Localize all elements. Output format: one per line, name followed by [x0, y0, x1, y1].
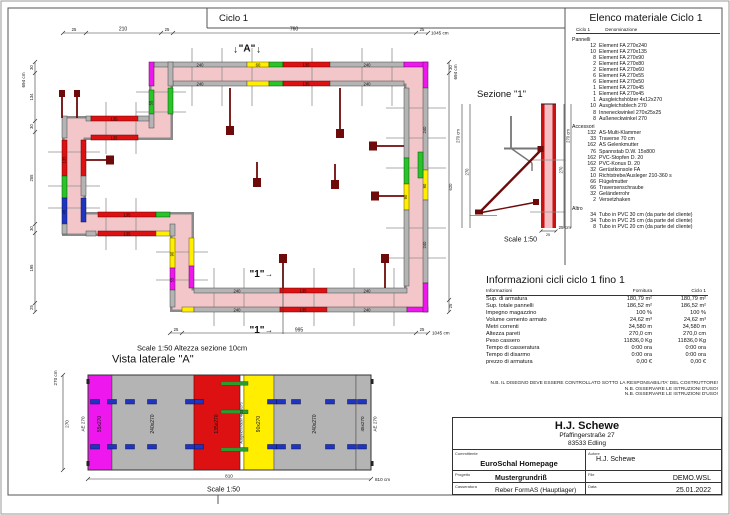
info-fornitura-value: 34,580 m [590, 324, 652, 331]
svg-text:694 cm: 694 cm [21, 72, 26, 87]
svg-text:255: 255 [29, 174, 34, 182]
info-label: Volume cemento armato [486, 317, 590, 324]
svg-text:25: 25 [174, 327, 179, 332]
svg-text:240x270: 240x270 [312, 414, 318, 433]
info-label: Tempo di disarmo [486, 352, 590, 359]
cell-autore: Autore H.J. Schewe [586, 450, 721, 470]
data-value: 25.01.2022 [586, 483, 721, 494]
info-ciclo-value: 186,52 m² [652, 303, 706, 310]
company-street: Pfaffingerstraße 27 [453, 432, 721, 440]
svg-text:25: 25 [420, 327, 425, 332]
info-ciclo-value: 100 % [652, 310, 706, 317]
svg-text:240: 240 [422, 126, 427, 134]
autore-value: H.J. Schewe [586, 450, 721, 463]
svg-text:694 cm: 694 cm [453, 64, 458, 79]
svg-text:270: 270 [559, 166, 564, 174]
section-title: Sezione "1" [477, 89, 526, 100]
info-ciclo-value: 0:00 ora [652, 345, 706, 352]
header-fornitura: Fornitura [590, 289, 652, 294]
svg-text:→: → [265, 326, 273, 335]
material-list: Elenco materiale Ciclo 1 Ciclo 1 Denomin… [572, 12, 720, 230]
svg-text:240: 240 [197, 81, 205, 86]
info-fornitura-value: 24,62 m³ [590, 317, 652, 324]
svg-text:1045 cm: 1045 cm [432, 331, 450, 336]
info-label: Sup. di armatura [486, 296, 590, 303]
cell-file: File DEMO.WSL [586, 471, 721, 482]
material-row: 8 Tubo in PVC 20 cm (da parte del client… [572, 224, 720, 230]
info-label: Altezza pareti [486, 331, 590, 338]
svg-text:135: 135 [300, 307, 308, 312]
svg-text:Ausgleichshölzer 4x12x270: Ausgleichshölzer 4x12x270 [240, 402, 244, 443]
plan-view: 240 240 60 135 135 240 240 240 90 240 90… [21, 27, 458, 353]
svg-text:135x270: 135x270 [214, 414, 220, 433]
material-qty: 8 [572, 116, 596, 122]
company-city: 83533 Edling [453, 440, 721, 448]
material-name: Außeneckwinkel 270 [599, 116, 647, 122]
material-rows-pannelli: 12 Element FA 270x240 10 Element FA 270x… [572, 43, 720, 122]
svg-text:"1": "1" [249, 269, 264, 280]
info-label: prezzo di armatura [486, 359, 590, 366]
svg-text:240: 240 [234, 288, 242, 293]
svg-text:90: 90 [422, 183, 427, 188]
svg-text:1045 cm: 1045 cm [431, 31, 449, 36]
plan-scale-note: Scale 1:50 Altezza sezione 10cm [137, 344, 247, 353]
info-fornitura-value: 11836,0 Kg [590, 338, 652, 345]
cell-casseratura: Casseratura Reber FormAS (Hauptlager) [453, 483, 586, 495]
info-row: Tempo di disarmo 0:00 ora 0:00 ora [486, 352, 708, 359]
title-block-company: H.J. Schewe Pfaffingerstraße 27 83533 Ed… [453, 418, 721, 450]
info-ciclo-value: 0,00 € [652, 359, 706, 366]
info-fornitura-value: 270,0 cm [590, 331, 652, 338]
info-row: Sup. totale pannelli 186,52 m² 186,52 m² [486, 303, 708, 310]
svg-text:240: 240 [197, 62, 205, 67]
info-fornitura-value: 0:00 ora [590, 345, 652, 352]
svg-text:240: 240 [364, 62, 372, 67]
svg-text:135: 135 [124, 231, 132, 236]
svg-text:30: 30 [29, 124, 34, 129]
svg-text:135: 135 [62, 156, 67, 164]
svg-text:↓: ↓ [233, 45, 238, 56]
svg-text:25: 25 [546, 233, 550, 237]
info-row: Metri correnti 34,580 m 34,580 m [486, 324, 708, 331]
side-view: Vista laterale "A" [53, 354, 390, 494]
svg-text:270: 270 [465, 168, 470, 176]
svg-text:270: 270 [65, 420, 70, 428]
info-row: Volume cemento armato 24,62 m³ 24,62 m³ [486, 317, 708, 324]
svg-text:"A": "A" [239, 44, 256, 55]
progetto-value: Mustergrundriß [453, 471, 585, 482]
cell-committente: Committente EuroSchal Homepage [453, 450, 586, 470]
svg-text:25: 25 [165, 27, 170, 32]
svg-text:270 cm: 270 cm [456, 129, 461, 143]
svg-text:240: 240 [364, 307, 372, 312]
nb-notes: N.B. IL DISEGNO DEVE ESSERE CONTROLLATO … [430, 381, 718, 398]
file-label: File [588, 472, 594, 477]
cycle-info-table: Informazioni cicli ciclo 1 fino 1 Inform… [486, 274, 708, 366]
svg-text:135: 135 [124, 212, 132, 217]
svg-text:210: 210 [119, 27, 128, 33]
svg-text:240x270: 240x270 [150, 414, 156, 433]
info-row: Sup. di armatura 180,79 m² 180,79 m² [486, 296, 708, 303]
info-row: Altezza pareti 270,0 cm 270,0 cm [486, 331, 708, 338]
svg-text:195: 195 [29, 264, 34, 272]
svg-text:995: 995 [295, 328, 304, 334]
section-scale: Scale 1:50 [504, 237, 537, 244]
title-block: H.J. Schewe Pfaffingerstraße 27 83533 Ed… [452, 417, 722, 495]
info-label: Impegno magazzino [486, 310, 590, 317]
svg-text:810: 810 [225, 474, 233, 479]
svg-text:30: 30 [448, 65, 453, 70]
plan-title: Ciclo 1 [219, 13, 248, 24]
svg-text:135: 135 [111, 135, 119, 140]
svg-text:240: 240 [234, 307, 242, 312]
cycle-info-header: Informazioni Fornitura Ciclo 1 [486, 289, 708, 296]
side-view-scale: Scale 1:50 [207, 487, 240, 494]
plan-traverses [48, 48, 446, 326]
svg-text:30: 30 [29, 226, 34, 231]
cycle-info-title: Informazioni cicli ciclo 1 fino 1 [486, 274, 708, 286]
svg-text:760: 760 [290, 27, 299, 33]
nb-note-line: N.B. OSSERVARE LE ISTRUZIONI D'USO! [430, 392, 718, 398]
svg-text:134: 134 [29, 93, 34, 101]
svg-text:90x270: 90x270 [256, 416, 262, 433]
info-label: Tempo di casseratura [486, 345, 590, 352]
material-name: Versetzhaken [599, 197, 630, 203]
plan-walls [74, 74, 416, 300]
company-name: H.J. Schewe [453, 420, 721, 432]
svg-text:AE 270: AE 270 [373, 416, 378, 432]
svg-text:135: 135 [303, 62, 311, 67]
plan-panels [62, 62, 428, 312]
svg-text:135: 135 [111, 116, 119, 121]
info-ciclo-value: 34,580 m [652, 324, 706, 331]
info-ciclo-value: 270,0 cm [652, 331, 706, 338]
svg-text:55x270: 55x270 [97, 416, 103, 433]
svg-text:240: 240 [422, 241, 427, 249]
info-ciclo-value: 180,79 m² [652, 296, 706, 303]
svg-text:90: 90 [170, 251, 175, 256]
svg-text:45: 45 [62, 209, 67, 214]
svg-text:60: 60 [256, 62, 261, 67]
svg-text:25: 25 [72, 27, 77, 32]
svg-text:↓: ↓ [256, 45, 261, 56]
material-rows-altro: 34 Tubo in PVC 30 cm (da parte del clien… [572, 212, 720, 230]
info-fornitura-value: 0,00 € [590, 359, 652, 366]
svg-text:45x270: 45x270 [360, 416, 365, 432]
info-row: prezzo di armatura 0,00 € 0,00 € [486, 359, 708, 366]
svg-text:AE 270: AE 270 [81, 416, 86, 432]
cell-data: Data 25.01.2022 [586, 483, 721, 495]
svg-text:55: 55 [149, 100, 154, 105]
svg-text:25: 25 [420, 27, 425, 32]
info-row: Tempo di casseratura 0:00 ora 0:00 ora [486, 345, 708, 352]
autore-label: Autore [588, 451, 600, 456]
info-fornitura-value: 186,52 m² [590, 303, 652, 310]
progetto-label: Progetto [455, 472, 470, 477]
drawing-sheet: Ciclo 1 [0, 0, 730, 515]
svg-text:25: 25 [448, 303, 453, 308]
svg-text:620: 620 [448, 183, 453, 191]
svg-text:810 cm: 810 cm [375, 477, 390, 482]
material-list-title: Elenco materiale Ciclo 1 [572, 12, 720, 24]
casseratura-label: Casseratura [455, 484, 477, 489]
material-list-columns: Ciclo 1 Denominazione [576, 27, 720, 34]
svg-text:240: 240 [364, 288, 372, 293]
info-label: Peso cassero [486, 338, 590, 345]
material-row: 2 Versetzhaken [572, 197, 720, 203]
svg-text:25: 25 [29, 305, 34, 310]
cell-progetto: Progetto Mustergrundriß [453, 471, 586, 482]
info-label: Metri correnti [486, 324, 590, 331]
svg-text:30: 30 [29, 65, 34, 70]
cycle-info-rows: Sup. di armatura 180,79 m² 180,79 m² Sup… [486, 296, 708, 366]
info-row: Impegno magazzino 100 % 100 % [486, 310, 708, 317]
info-ciclo-value: 11836,0 Kg [652, 338, 706, 345]
material-name: Tubo in PVC 20 cm (da parte del cliente) [599, 224, 693, 230]
info-label: Sup. totale pannelli [486, 303, 590, 310]
material-qty: 8 [572, 224, 596, 230]
info-fornitura-value: 100 % [590, 310, 652, 317]
svg-text:135: 135 [303, 81, 311, 86]
svg-text:240: 240 [364, 81, 372, 86]
material-row: 8 Außeneckwinkel 270 [572, 116, 720, 122]
material-qty: 2 [572, 197, 596, 203]
info-row: Peso cassero 11836,0 Kg 11836,0 Kg [486, 338, 708, 345]
column-denominazione: Denominazione [605, 27, 637, 32]
column-ciclo: Ciclo 1 [576, 27, 604, 32]
header-ciclo1: Ciclo 1 [652, 289, 706, 294]
info-fornitura-value: 0:00 ora [590, 352, 652, 359]
section-view: Sezione "1" 270 cm 270 270 270 cm 25 25 … [456, 89, 572, 244]
svg-text:135: 135 [300, 288, 308, 293]
info-ciclo-value: 24,62 m³ [652, 317, 706, 324]
info-ciclo-value: 0:00 ora [652, 352, 706, 359]
info-fornitura-value: 180,79 m² [590, 296, 652, 303]
svg-text:25 cm: 25 cm [559, 225, 572, 230]
header-informazioni: Informazioni [486, 289, 590, 294]
data-label: Data [588, 484, 596, 489]
committente-label: Committente [455, 451, 478, 456]
svg-text:"1": "1" [249, 325, 264, 336]
svg-text:270 cm: 270 cm [53, 370, 58, 385]
side-view-title: Vista laterale "A" [112, 354, 194, 366]
svg-text:270 cm: 270 cm [566, 129, 571, 143]
material-rows-accessori: 132 AS-Multi-Klammer 33 Traverse 70 cm 1… [572, 130, 720, 203]
file-value: DEMO.WSL [586, 471, 721, 482]
svg-text:→: → [265, 270, 273, 279]
svg-text:55: 55 [170, 277, 175, 282]
